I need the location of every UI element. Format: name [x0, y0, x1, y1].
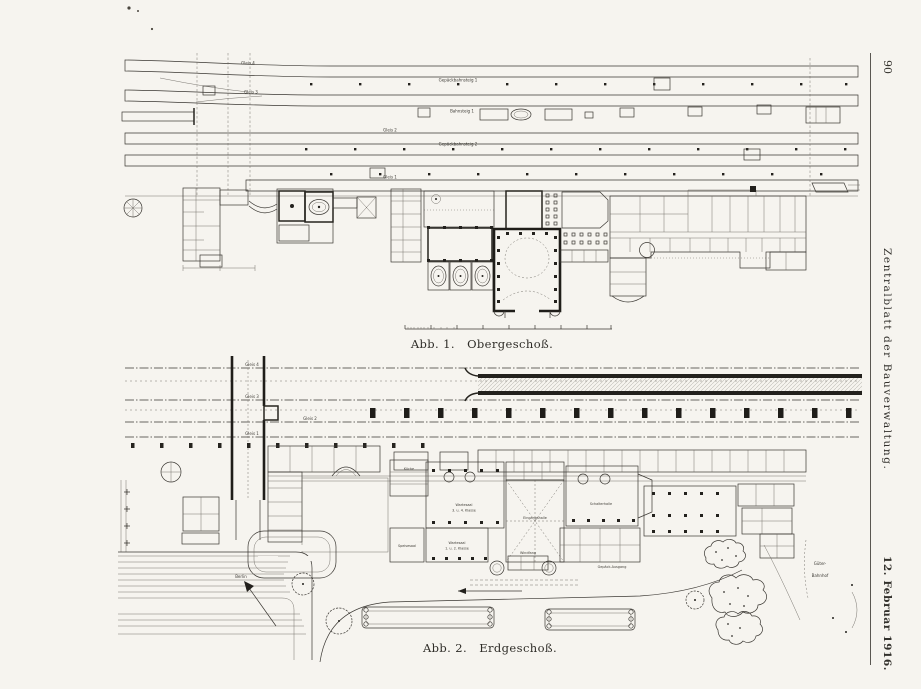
label-berlin: Berlin [235, 574, 247, 579]
label-g4: Gleis 4 [245, 362, 259, 367]
page-number: 90 [881, 60, 894, 74]
planted-strip [362, 607, 494, 628]
label-wartesaal12: Wartesaal [449, 541, 466, 545]
label-wartesaal12-2: 1. u. 2. Klasse [445, 547, 469, 551]
tunnel-walls [232, 356, 278, 540]
access-corridor [465, 368, 862, 401]
journal-title: Zentralblatt der Bauverwaltung. [881, 248, 893, 470]
label-gueterbahnhof: Güter- [814, 561, 827, 566]
site-surroundings: Berlin [118, 480, 857, 662]
label-gepaeck-ausgang: Gepäck-Ausgang [598, 565, 627, 569]
label-bahnsteig-1: Bahnsteig 1 [450, 109, 474, 114]
ground-floor-plan: Gleis 4 Gleis 3 Gleis 2 Gleis 1 [118, 356, 862, 662]
label-gleis-2: Gleis 2 [383, 128, 397, 133]
label-windfang: Windfang [520, 551, 536, 555]
label-speisesaal: Speisesaal [398, 544, 416, 548]
figure-2-caption: Abb. 2. Erdgeschoß. [360, 641, 620, 655]
pillar-row-main [370, 408, 852, 418]
label-gleis-3: Gleis 3 [244, 90, 258, 95]
spiral-stair [124, 199, 142, 217]
issue-date: 12. Februar 1916. [881, 556, 893, 671]
label-gleis-1: Gleis 1 [383, 175, 397, 180]
label-schalterhalle: Schalterhalle [590, 502, 612, 506]
scan-specks [127, 6, 153, 30]
figure-1-caption: Abb. 1. Obergeschoß. [352, 337, 612, 351]
margin-rule [870, 53, 871, 665]
planted-strip [545, 609, 635, 630]
upper-floor-plan: Gleis 4 Gleis 3 Gleis 2 Gleis 1 Gepäckba… [122, 53, 860, 329]
label-kueche: Küche [404, 467, 414, 471]
label-wartesaal34-2: 3. u. 4. Klasse [452, 509, 476, 513]
label-gepaeckbahnsteig-2: Gepäckbahnsteig 2 [439, 142, 478, 147]
scale-bar [405, 325, 612, 329]
label-eingangshalle: Eingangshalle [523, 516, 547, 520]
label-wartesaal34: Wartesaal [456, 503, 473, 507]
scanned-journal-page: Gleis 4 Gleis 3 Gleis 2 Gleis 1 Gepäckba… [0, 0, 921, 689]
pillar-row-front [131, 443, 425, 448]
upper-floor-buildings [124, 183, 860, 318]
label-gueterbahnhof-2: Bahnhof [812, 573, 829, 578]
track-beds [122, 53, 858, 196]
platform-structures [203, 78, 840, 178]
label-gleis-4: Gleis 4 [241, 61, 255, 66]
label-gepaeckbahnsteig-1: Gepäckbahnsteig 1 [439, 78, 478, 83]
label-g3: Gleis 3 [245, 394, 259, 399]
label-g1: Gleis 1 [245, 431, 259, 436]
room-band [268, 446, 806, 481]
label-g2: Gleis 2 [303, 416, 317, 421]
